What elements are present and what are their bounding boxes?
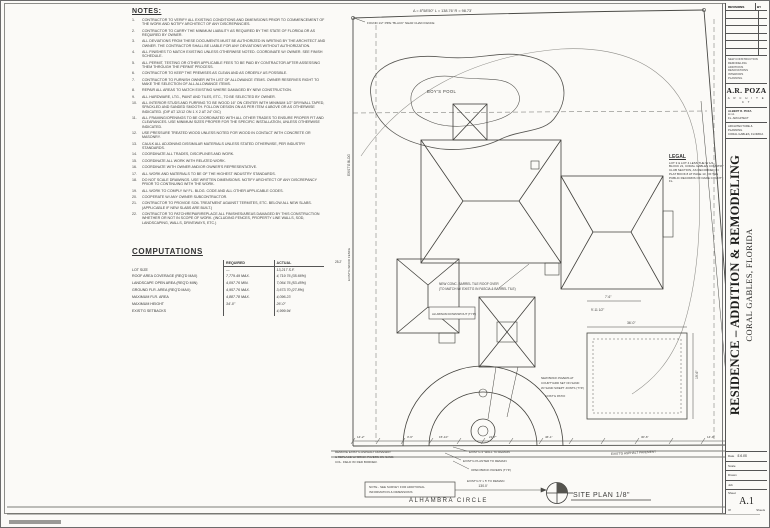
legal-text: LOT 3 & LOT 4 LESS THE W 1/2, BLOCK 21, …	[669, 162, 725, 185]
note-item: 20.COOPERATE W/ ANY OWNER SUBCONTRACTOR.	[132, 195, 328, 199]
bottom-dim: 30'-6"	[641, 435, 649, 439]
principal-block: ALBERT R. POZA A.I.A. FL. ARCHITECT	[726, 108, 767, 124]
sheet-label: Sheet	[728, 491, 765, 495]
courtyard-note-line1: NEW BRICK PAVERS AT	[541, 376, 574, 380]
bottom-dim: 15'-10"	[439, 435, 448, 439]
revisions-table: REVISIONS BY	[726, 3, 767, 56]
computations-table: REQUIRED ACTUAL LOT SIZE—13,217 S.F.ROOF…	[132, 260, 324, 316]
computations-header: REQUIRED ACTUAL	[132, 260, 324, 267]
note-item: 12.USE PRESSURE TREATED WOOD UNLESS NOTE…	[132, 131, 328, 139]
computations-row: LOT SIZE—13,217 S.F.	[132, 267, 324, 274]
revision-row	[726, 41, 767, 49]
driveway-outer-arc	[403, 366, 563, 446]
title-block: REVISIONS BY NEW CONSTRUCTIONREMODELINGA…	[725, 3, 767, 514]
drawn-row: Drawn	[726, 471, 767, 481]
note-item: 16.COORDINATE WITH OWNER AND/OR OWNER'S …	[132, 165, 328, 169]
roof-main-mass	[421, 140, 561, 263]
wall-note: EXIST'G 4' WALL TO REMAIN	[469, 450, 510, 454]
note-item: 17.ALL WORK AND MATERIALS TO BE OF THE H…	[132, 172, 328, 176]
fence-label: EXIST'G WOOD FENCE	[347, 248, 351, 281]
project-title: RESIDENCE – ADDITION & REMODELING	[728, 144, 743, 426]
roof-note-line1: NEW CONC. BARREL TILE ROOF OVER	[439, 282, 499, 286]
note-item: 2.CONTRACTOR TO CARRY THE MINIMUM LIABIL…	[132, 29, 328, 37]
driveway-note-line1: REMOVE EXIST'G ASPHALT DRIVEWAY	[335, 450, 391, 454]
note-item: 1.CONTRACTOR TO VERIFY ALL EXISTING COND…	[132, 18, 328, 26]
bottom-dim: 14'-9"	[707, 435, 715, 439]
street-name-label: ALHAMBRA CIRCLE	[409, 498, 488, 504]
job-label: Job	[728, 483, 733, 487]
sheet-number-box: Sheet A.1 Of Sheets	[726, 490, 767, 514]
courtyard-note-line3: W/ SAND SWEPT JOINTS (TYP.)	[541, 386, 584, 390]
roof-note-line2: (TO MATCH W/ EXIST'G IN FASCIA & BARREL …	[439, 287, 516, 291]
office-line2: CORAL GABLES, FLORIDA	[728, 133, 765, 137]
curve-data-label: Δ = 8°58'50" L = 138.76' R = 98.73'	[413, 9, 472, 13]
plot-stamp	[9, 520, 61, 524]
date-row: Date 5.6.05	[726, 452, 767, 462]
firm-title: A R C H I T E C T	[726, 96, 767, 104]
by-label: BY	[755, 3, 767, 10]
remain-note: EXIST'G 5' x 5' TO REMAIN	[467, 479, 504, 483]
note-item: 6.CONTRACTOR TO KEEP THE PREMISES AS CLE…	[132, 71, 328, 75]
note-item: 5.ALL PERMIT, TESTING OR OTHER APPLICABL…	[132, 61, 328, 69]
note-item: 3.ALL DEVIATIONS FROM THESE DOCUMENTS MU…	[132, 39, 328, 47]
revisions-header: REVISIONS BY	[726, 3, 767, 11]
computations-row: MAXIMUM HEIGHT34'-0"26'-0"	[132, 302, 324, 309]
note-item: 7.CONTRACTOR TO FURNISH OWNER WITH LIST …	[132, 78, 328, 86]
notes-title: NOTES:	[132, 8, 328, 15]
property-line-front	[353, 10, 704, 18]
computations-rows: LOT SIZE—13,217 S.F.ROOF AREA COVERAGE (…	[132, 267, 324, 316]
monument-note: FOUND 1/2" PIPE "BLACK" NEAR CHAIN FENCE	[367, 21, 435, 25]
setback-line-front	[353, 111, 707, 113]
job-row: Job	[726, 481, 767, 491]
computations-row: MAXIMUM FLR. AREA4,887.78 MAX.4,096.23	[132, 295, 324, 302]
drawn-label: Drawn	[728, 473, 737, 477]
north-arrow-icon	[547, 483, 574, 504]
note-item: 21.CONTRACTOR TO PROVIDE SOIL TREATMENT …	[132, 201, 328, 209]
dim-19-6: 19'-6"	[695, 370, 699, 379]
note-item: 14.COORDINATE ALL TRADES, DISCIPLINES AN…	[132, 152, 328, 156]
office-block: ARCHITECTURE & PLANNING CORAL GABLES, FL…	[726, 123, 767, 139]
note-item: 10.ALL INTERIOR STUDS AND FURRING TO BE …	[132, 101, 328, 114]
principal-license: FL. ARCHITECT	[728, 117, 765, 121]
note-item: 15.COORDINATE ALL WORK WITH RELATED WORK…	[132, 159, 328, 163]
pond-contour-outer	[371, 54, 564, 149]
computations-row: EXIST'G SETBACKS4,999.94	[132, 309, 324, 316]
dim-36: 36'-0"	[627, 321, 636, 325]
dim-7-6: 7'-6"	[605, 295, 611, 299]
actual-column-header: ACTUAL	[274, 260, 325, 267]
note-item: 13.CAULK ALL ADJOINING DISSIMILAR MATERI…	[132, 142, 328, 150]
fountain	[471, 419, 495, 443]
dim-130: 130.0'	[478, 484, 487, 488]
computations-title: COMPUTATIONS	[132, 247, 324, 256]
required-column-header: REQUIRED	[223, 260, 274, 267]
date-label: Date	[728, 454, 734, 458]
driveway-note-line2: & REPLACE W/ BRICK PAVERS ON SAND.	[335, 455, 394, 459]
computations-row: GROUND FLR. AREA (REQ'D MAX)4,957.76 MAX…	[132, 288, 324, 295]
pond-label: BOY'S POOL	[427, 89, 457, 94]
driveway-note-line3: COL. FIELD W/ RED BORDER.	[335, 460, 378, 464]
notes-list: 1.CONTRACTOR TO VERIFY ALL EXISTING COND…	[132, 18, 328, 225]
survey-note-line2: INFORMATION & DIMENSIONS	[369, 490, 412, 494]
legal-section: LEGAL LOT 3 & LOT 4 LESS THE W 1/2, BLOC…	[669, 154, 725, 184]
exist-bldg-label: EXIST'G BLDG	[347, 154, 351, 176]
sheet-info-rows: Date 5.6.05 Scale Drawn Job	[726, 451, 767, 490]
firm-services-list: NEW CONSTRUCTIONREMODELINGADDITIONSRENOV…	[726, 56, 767, 84]
patio-label: EXIST'G PATIO	[545, 394, 566, 398]
firm-block: A.R. POZA A R C H I T E C T	[726, 84, 767, 108]
scale-row: Scale	[726, 462, 767, 472]
roof-right-wing	[561, 176, 663, 289]
patio-outline	[587, 333, 687, 419]
firm-service-item: PLANNING	[728, 77, 765, 81]
courtyard-note-line2: COURTYARD SET ON SAND	[541, 381, 579, 385]
property-line-rear	[353, 445, 738, 446]
revision-row	[726, 26, 767, 34]
note-item: 4.ALL FINISHES TO MATCH EXISTING UNLESS …	[132, 50, 328, 58]
drawing-sheet: Δ = 8°58'50" L = 138.76' R = 98.73' FOUN…	[0, 0, 770, 528]
note-item: 9.ALL HARDWARE, LTG., PAINT AND TILES, E…	[132, 95, 328, 99]
revision-row	[726, 19, 767, 27]
downspout-note: ALUMINUM DOWNSPOUT (TYP.)	[432, 312, 476, 316]
of-label: Of	[728, 508, 731, 512]
scale-label: Scale	[728, 464, 736, 468]
computations-row: LANDSCAPE OPEN AREA (REQ'D MIN)4,097.76 …	[132, 281, 324, 288]
bottom-dim: 46'-1"	[545, 435, 553, 439]
sheet-number: A.1	[728, 496, 765, 507]
computations-section: COMPUTATIONS REQUIRED ACTUAL LOT SIZE—13…	[132, 247, 324, 316]
planter-note: EXIST'G PLANTER TO REMAIN	[463, 459, 507, 463]
ground-contour	[361, 49, 700, 394]
revisions-label: REVISIONS	[726, 3, 755, 10]
bottom-dim: 3'-6"	[407, 435, 413, 439]
note-item: 19.ALL WORK TO COMPLY W/ FL. BLDG. CODE …	[132, 189, 328, 193]
pavement-note: EXIST'G ASPHALT PAVEMENT	[611, 450, 656, 456]
note-item: 22.CONTRACTOR TO PATCH/REPAIR/REPLACE AL…	[132, 212, 328, 225]
sheets-label: Sheets	[756, 508, 765, 512]
revision-rows	[726, 11, 767, 55]
project-title-vertical: RESIDENCE – ADDITION & REMODELING CORAL …	[728, 144, 766, 426]
date-value: 5.6.05	[737, 454, 746, 458]
legal-title: LEGAL	[669, 154, 725, 160]
bottom-dim: 21'-7"	[489, 435, 497, 439]
project-title-zone: RESIDENCE – ADDITION & REMODELING CORAL …	[726, 139, 767, 451]
site-plan-drawing: Δ = 8°58'50" L = 138.76' R = 98.73' FOUN…	[1, 1, 770, 528]
firm-name: A.R. POZA	[726, 86, 767, 95]
note-item: 8.REPAIR ALL AREAS TO MATCH EXISTING WHE…	[132, 88, 328, 92]
note-item: 18.DO NOT SCALE DRAWINGS. USE WRITTEN DI…	[132, 178, 328, 186]
pond-contour-inner	[411, 76, 520, 126]
chimney	[531, 161, 539, 169]
notes-section: NOTES: 1.CONTRACTOR TO VERIFY ALL EXISTI…	[132, 8, 328, 227]
left-dim-label: 25.2'	[335, 260, 342, 264]
bottom-dim: 14'-2"	[357, 435, 365, 439]
plan-title: SITE PLAN 1/8"	[573, 492, 630, 499]
dim-9-11: 9'-11 1/2"	[591, 308, 604, 312]
project-subtitle: CORAL GABLES, FLORIDA	[744, 144, 754, 426]
pavers-note: OPEN BRICK PAVERS (TYP.)	[471, 468, 511, 472]
revision-row	[726, 34, 767, 42]
revision-row	[726, 49, 767, 56]
note-item: 11.ALL FRAMING/OPENINGS TO BE COORDINATE…	[132, 116, 328, 129]
revision-row	[726, 11, 767, 19]
computations-row: ROOF AREA COVERAGE (REQ'D MAX)7,779.49 M…	[132, 274, 324, 281]
survey-note-line1: NOTE - SEE SURVEY FOR ADDITIONAL	[369, 485, 425, 489]
